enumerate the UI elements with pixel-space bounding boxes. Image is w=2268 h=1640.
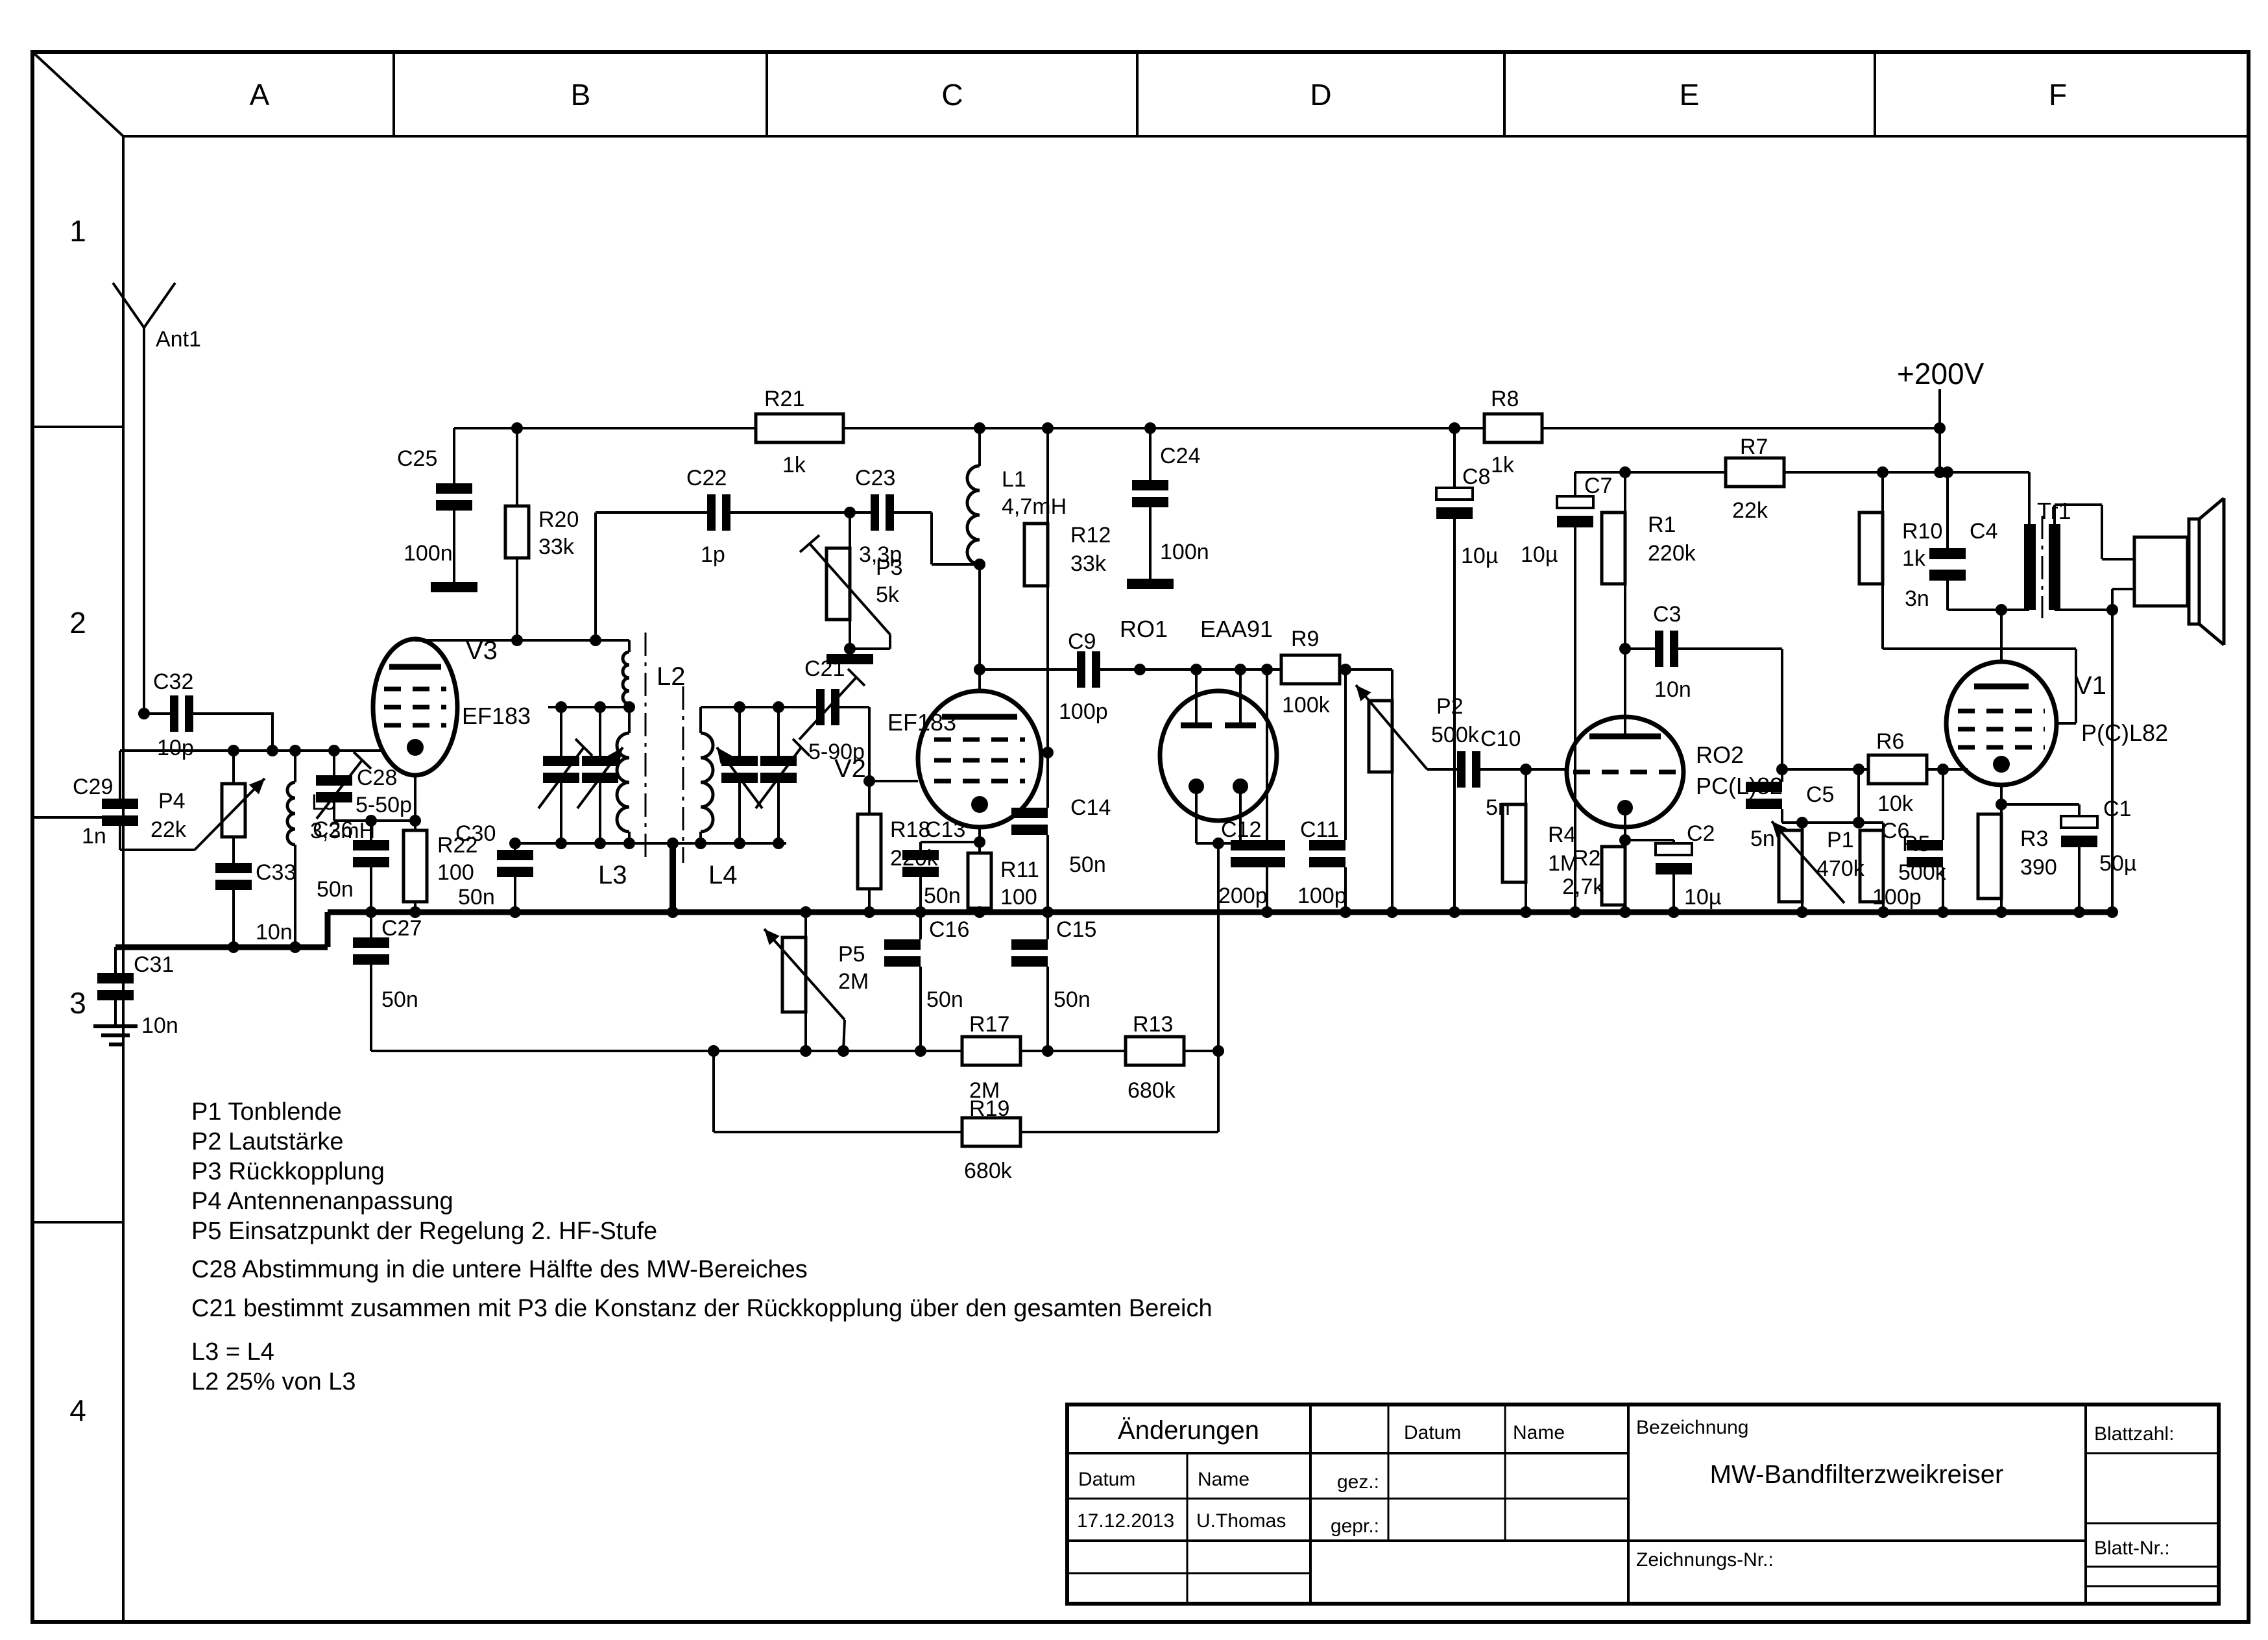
transformer-winding [2049, 524, 2060, 610]
junction-dot [800, 1045, 812, 1057]
wire [144, 283, 175, 328]
label-c1: C1 [2103, 797, 2131, 821]
junction-dot [974, 836, 985, 848]
frame-corner-diagonal [32, 52, 123, 136]
junction-dot [1619, 466, 1631, 478]
junction-dot [695, 838, 706, 849]
junction-dot [1877, 466, 1888, 478]
label-l1: L1 [1002, 467, 1026, 492]
label-r19: R19 [969, 1096, 1009, 1121]
capacitor-plate [1929, 570, 1966, 581]
notes: P1 Tonblende P2 Lautstärke P3 Rückkopplu… [191, 1098, 1212, 1395]
tube-cathode-dot [1993, 756, 2010, 773]
title-block-datum-label: Datum [1078, 1469, 1135, 1490]
label-r19: 680k [964, 1159, 1013, 1183]
electrolytic-plate [1656, 863, 1692, 874]
electrolytic-plate [1436, 507, 1473, 519]
junction-dot [228, 941, 239, 953]
label-c29: 1n [82, 824, 106, 849]
junction-dot [1853, 817, 1864, 828]
frame-col-letter: B [571, 78, 591, 112]
label-r1: 220k [1648, 541, 1696, 566]
capacitor-plate [353, 954, 389, 965]
junction-dot [1619, 643, 1631, 655]
label-c11: 100p [1297, 884, 1347, 908]
capacitor-plate [1077, 651, 1085, 688]
note-line: P5 Einsatzpunkt der Regelung 2. HF-Stufe [191, 1218, 657, 1245]
title-block-zeichnungsnr-label: Zeichnungs-Nr.: [1636, 1549, 1774, 1571]
label-p1: P1 [1827, 828, 1854, 852]
junction-dot [1853, 764, 1864, 775]
note-line: C28 Abstimmung in die untere Hälfte des … [191, 1256, 808, 1283]
label-r7: R7 [1740, 435, 1768, 459]
note-line: P4 Antennenanpassung [191, 1188, 453, 1215]
inductor-coil [701, 733, 713, 832]
junction-dot [1668, 906, 1680, 918]
capacitor-plate [707, 494, 716, 531]
capacitor-plate [102, 815, 138, 826]
inductor-coil [967, 466, 980, 564]
label-c1: 50µ [2099, 851, 2136, 876]
junction-dot [734, 701, 745, 713]
inductor-coil [287, 782, 295, 845]
resistor-body [782, 937, 806, 1012]
label-c6: C6 [1881, 819, 1909, 843]
resistor-body [404, 830, 427, 902]
junction-dot [773, 701, 784, 713]
label-c5: 5n [1750, 826, 1775, 851]
resistor-body [962, 1118, 1020, 1146]
junction-dot [1937, 906, 1949, 918]
junction-dot [974, 906, 985, 918]
label-c14: 50n [1069, 852, 1106, 877]
junction-dot [1134, 664, 1146, 675]
title-block-blattnr-label: Blatt-Nr.: [2094, 1537, 2170, 1559]
label-p2: 500k [1431, 723, 1480, 747]
label-l3: L3 [598, 861, 627, 889]
resistor-body [962, 1037, 1020, 1065]
resistor-body [1868, 755, 1927, 784]
label-c14: C14 [1070, 795, 1111, 820]
junction-dot [2106, 906, 2118, 918]
label-r3: R3 [2020, 826, 2048, 851]
label-r5: 500k [1898, 860, 1947, 885]
label-c7: 10µ [1521, 542, 1558, 567]
capacitor-plate [353, 857, 389, 867]
speaker-icon [2189, 519, 2199, 624]
label-r20: R20 [538, 507, 579, 532]
capacitor-plate [1746, 799, 1782, 809]
frame-row-number: 3 [69, 986, 86, 1020]
junction-dot [1212, 1045, 1224, 1057]
title-block-texts: Änderungen Datum Name 17.12.2013 U.Thoma… [1077, 1416, 2174, 1571]
label-c2: C2 [1687, 821, 1715, 846]
resistor-body [1024, 524, 1048, 586]
junction-dot [800, 906, 812, 918]
label-r2: 2,7k [1562, 874, 1604, 899]
junction-dot [1619, 906, 1631, 918]
junction-dot [1996, 799, 2007, 810]
junction-dot [289, 745, 301, 756]
junction-dot [1796, 817, 1808, 828]
label-r4: R4 [1548, 823, 1576, 847]
label-r2: R2 [1573, 846, 1600, 871]
label-c3: C3 [1653, 602, 1681, 627]
label-r20: 33k [538, 535, 575, 559]
label-c22: C22 [686, 466, 727, 490]
junction-dot [1042, 422, 1054, 434]
resistor-body [968, 853, 991, 908]
speaker-icon [2134, 537, 2188, 606]
label-ant1: Ant1 [156, 327, 201, 352]
label-r13: R13 [1133, 1012, 1173, 1037]
label-c13: 50n [924, 884, 961, 908]
junction-dot [1569, 906, 1581, 918]
label-c27: C27 [381, 916, 422, 941]
title-block-datum2-label: Datum [1404, 1422, 1461, 1443]
capacitor-plate [97, 990, 134, 1000]
junction-dot [974, 559, 985, 570]
note-line: P1 Tonblende [191, 1098, 342, 1126]
junction-dot [734, 838, 745, 849]
capacitor-plate [1011, 939, 1048, 950]
label-c10: C10 [1480, 727, 1521, 751]
label-c4: 3n [1905, 586, 1929, 611]
junction-dot [328, 745, 340, 756]
label-r21: 1k [782, 453, 806, 477]
capacitor-plate [497, 850, 533, 860]
capacitor-plate [1132, 497, 1168, 507]
capacitor-plate [884, 956, 921, 967]
junction-dot [1449, 906, 1460, 918]
schematic-graphics: Ant1C3210pC291nP422kL53,3mHC3310nC3110nC… [73, 283, 2224, 1183]
label-c12: 200p [1218, 884, 1268, 908]
note-line: L3 = L4 [191, 1338, 274, 1366]
label-c10: 5n [1486, 795, 1510, 820]
junction-dot [1520, 764, 1532, 775]
capacitor-plate [1670, 631, 1678, 667]
note-line: P2 Lautstärke [191, 1128, 343, 1155]
frame-col-letter: D [1310, 78, 1331, 112]
capacitor-plate [884, 939, 921, 950]
capacitor-plate [170, 695, 178, 732]
label-c23: C23 [855, 466, 895, 490]
resistor-body [1602, 847, 1625, 905]
label-c8: C8 [1462, 464, 1490, 489]
junction-dot [1520, 906, 1532, 918]
label-r8: R8 [1491, 387, 1519, 411]
label-r7: 22k [1732, 498, 1768, 523]
junction-dot [509, 838, 521, 849]
frame-col-letter: A [250, 78, 270, 112]
label-c31: C31 [134, 952, 174, 977]
label-p3: 5k [876, 583, 900, 607]
label-r12: 33k [1070, 551, 1107, 576]
wire [113, 283, 144, 328]
supply-voltage-label: +200V [1897, 357, 1984, 391]
label-r6: R6 [1876, 729, 1904, 754]
tube-cathode-dot [971, 796, 988, 813]
label-r13: 680k [1128, 1078, 1176, 1103]
junction-dot [138, 708, 150, 719]
junction-dot [667, 906, 679, 918]
capacitor-plate [436, 500, 472, 511]
label-c15: 50n [1054, 987, 1091, 1012]
junction-dot [863, 906, 875, 918]
title-block-name-value: U.Thomas [1196, 1510, 1286, 1532]
junction-dot [844, 507, 856, 518]
label-v3: EF183 [462, 703, 531, 729]
label-c28: 5-50p [356, 793, 412, 817]
label-c32: C32 [153, 669, 193, 694]
transformer-winding [2024, 524, 2036, 610]
label-r18: 220k [890, 846, 939, 871]
junction-dot [1261, 664, 1273, 675]
note-line: L2 25% von L3 [191, 1368, 356, 1395]
note-line: C21 bestimmt zusammen mit P3 die Konstan… [191, 1295, 1212, 1322]
junction-dot [594, 701, 606, 713]
junction-dot [228, 745, 239, 756]
label-v1: V1 [2075, 671, 2106, 700]
title-block-aenderungen: Änderungen [1118, 1416, 1259, 1445]
junction-dot [844, 643, 856, 655]
label-l1: 4,7mH [1002, 494, 1067, 519]
junction-dot [2106, 604, 2118, 616]
label-c25: C25 [397, 446, 437, 471]
junction-dot [511, 422, 523, 434]
title-block-name2-label: Name [1513, 1422, 1565, 1443]
junction-dot [974, 422, 985, 434]
resistor-body [1126, 1037, 1184, 1065]
capacitor-plate [185, 695, 193, 732]
label-c12: C12 [1221, 817, 1261, 842]
resistor-body [1859, 512, 1883, 584]
capacitor-plate [831, 689, 839, 725]
junction-dot [2073, 906, 2085, 918]
resistor-body [1978, 814, 2001, 898]
label-c24: 100n [1160, 540, 1209, 564]
capacitor-plate [722, 494, 730, 531]
capacitor-plate [97, 973, 134, 983]
junction-dot [590, 634, 601, 646]
label-tr1: Tr1 [2037, 498, 2071, 524]
frame-col-letter: C [941, 78, 963, 112]
tube-cathode-dot [407, 739, 424, 756]
title-block-title: MW-Bandfilterzweikreiser [1710, 1460, 2004, 1489]
label-c5: C5 [1806, 782, 1834, 807]
label-c26: 50n [317, 877, 354, 902]
capacitor-plate [1132, 480, 1168, 490]
junction-dot [1996, 604, 2007, 616]
label-p4: 22k [151, 817, 187, 842]
frame-col-letter: F [2049, 78, 2067, 112]
label-c6: 100p [1872, 885, 1922, 910]
label-c33: 10n [256, 920, 293, 945]
ground-bar [1127, 579, 1174, 589]
label-r1: R1 [1648, 512, 1676, 537]
junction-dot [1235, 664, 1246, 675]
title-block-bezeichnung-label: Bezeichnung [1636, 1417, 1748, 1438]
label-l5: L5 [311, 790, 336, 815]
electrolytic-plate-open [2061, 816, 2097, 828]
note-line: P3 Rückkopplung [191, 1158, 385, 1185]
capacitor-plate [1092, 651, 1100, 688]
label-ro2: RO2 [1696, 742, 1744, 768]
junction-dot [1619, 834, 1631, 846]
label-r22: 100 [437, 860, 474, 885]
junction-dot [1937, 764, 1949, 775]
label-p5: P5 [838, 942, 865, 967]
title-block-blattzahl-label: Blattzahl: [2094, 1423, 2174, 1445]
resistor-body [505, 506, 529, 558]
electrolytic-plate [2061, 836, 2097, 847]
frame-col-letter: E [1680, 78, 1700, 112]
capacitor-plate [215, 863, 252, 873]
label-r9: 100k [1282, 693, 1331, 717]
label-p4: P4 [158, 789, 186, 814]
label-c9: 100p [1059, 699, 1108, 724]
junction-dot [915, 1045, 926, 1057]
electrolytic-plate [1557, 516, 1593, 527]
label-c32: 10p [157, 736, 194, 760]
label-c26: C26 [313, 817, 353, 842]
frame-row-number: 4 [69, 1393, 86, 1427]
junction-dot [1934, 422, 1946, 434]
label-r9: R9 [1291, 627, 1319, 651]
label-c3: 10n [1654, 677, 1691, 702]
junction-dot [773, 838, 784, 849]
label-v3: V3 [466, 636, 498, 665]
label-ro1: EAA91 [1200, 616, 1273, 642]
resistor-body [1281, 655, 1340, 684]
label-v2: V2 [834, 754, 866, 783]
label-ro1: RO1 [1120, 616, 1168, 642]
label-r11: R11 [1000, 858, 1039, 882]
label-l4: L4 [708, 861, 738, 889]
tube-cathode-dot [1188, 778, 1204, 794]
label-c28: C28 [357, 766, 397, 790]
label-c16: C16 [929, 917, 969, 942]
frame-row-number: 1 [69, 214, 86, 248]
label-c21: C21 [804, 657, 845, 681]
capacitor-plate [1929, 548, 1966, 559]
label-r6: 10k [1877, 791, 1914, 816]
label-p3: P3 [876, 555, 903, 580]
speaker-icon [2199, 624, 2224, 645]
junction-dot [974, 664, 985, 675]
junction-dot [1449, 422, 1460, 434]
junction-dot [1340, 664, 1351, 675]
label-r12: R12 [1070, 523, 1111, 548]
tube-cathode-dot [1617, 800, 1633, 815]
capacitor-plate [436, 483, 472, 494]
label-r8: 1k [1491, 453, 1515, 477]
label-l2: L2 [657, 662, 686, 691]
label-c16: 50n [926, 987, 963, 1012]
label-c2: 10µ [1684, 885, 1721, 910]
junction-dot [511, 634, 523, 646]
junction-dot [623, 838, 635, 849]
junction-dot [267, 745, 278, 756]
junction-dot [1386, 906, 1398, 918]
label-r3: 390 [2020, 855, 2057, 880]
electrolytic-plate-open [1436, 488, 1473, 500]
label-c33: C33 [256, 860, 296, 885]
label-v2: EF183 [887, 709, 956, 736]
label-c15: C15 [1056, 917, 1096, 942]
label-c11: C11 [1300, 817, 1339, 842]
tube-cathode-dot [1233, 778, 1248, 794]
title-block-gez-label: gez.: [1337, 1471, 1379, 1493]
label-c4: C4 [1970, 519, 1997, 544]
label-r10: 1k [1902, 546, 1926, 571]
label-c8: 10µ [1461, 544, 1498, 568]
schematic-canvas: A B C D E F 1 2 3 4 P1 Tonblende P2 Laut… [0, 0, 2268, 1640]
ground-bar [431, 582, 477, 592]
resistor-body [1726, 458, 1784, 487]
title-block-name-label: Name [1198, 1469, 1249, 1490]
label-c22: 1p [701, 542, 725, 567]
schematic-sheet: A B C D E F 1 2 3 4 P1 Tonblende P2 Laut… [0, 0, 2268, 1640]
capacitor-plate [102, 799, 138, 809]
title-block-date-value: 17.12.2013 [1077, 1510, 1174, 1532]
junction-dot [667, 838, 679, 849]
label-p2: P2 [1436, 694, 1464, 719]
tube-envelope [1160, 691, 1277, 821]
junction-dot [1190, 664, 1202, 675]
inductor-coil [623, 652, 629, 704]
label-c29: C29 [73, 775, 113, 799]
capacitor-plate [1011, 825, 1048, 835]
junction-dot [838, 1045, 849, 1057]
capacitor-plate [871, 494, 879, 531]
capacitor-plate [1655, 631, 1663, 667]
capacitor-plate [215, 880, 252, 890]
junction-dot [509, 906, 521, 918]
label-r10: R10 [1902, 519, 1942, 544]
label-c13: C13 [925, 817, 965, 842]
label-c31: 10n [141, 1013, 178, 1038]
label-c30: 50n [458, 885, 495, 910]
resistor-body [858, 814, 881, 889]
label-c9: C9 [1068, 629, 1096, 654]
junction-dot [623, 701, 635, 713]
label-c27: 50n [381, 987, 418, 1012]
junction-dot [1144, 422, 1156, 434]
label-r17: R17 [969, 1012, 1009, 1037]
junction-dot [1996, 906, 2007, 918]
label-ro2: PC(L)82 [1696, 773, 1783, 799]
capacitor-plate [886, 494, 894, 531]
label-p1: 470k [1816, 856, 1865, 881]
capacitor-plate [1011, 956, 1048, 967]
junction-dot [555, 838, 567, 849]
capacitor-plate [497, 867, 533, 877]
label-v1: P(C)L82 [2081, 719, 2168, 746]
junction-dot [1042, 1045, 1054, 1057]
label-r11: 100 [1000, 885, 1037, 910]
junction-dot [1942, 466, 1953, 478]
junction-dot [708, 1045, 719, 1057]
label-c30: C30 [455, 821, 496, 846]
label-c25: 100n [404, 541, 453, 566]
resistor-body [1602, 512, 1625, 584]
title-block-gepr-label: gepr.: [1331, 1515, 1379, 1537]
label-p5: 2M [838, 969, 869, 994]
capacitor-plate [1231, 857, 1267, 867]
label-r21: R21 [764, 387, 804, 411]
junction-dot [1796, 906, 1808, 918]
